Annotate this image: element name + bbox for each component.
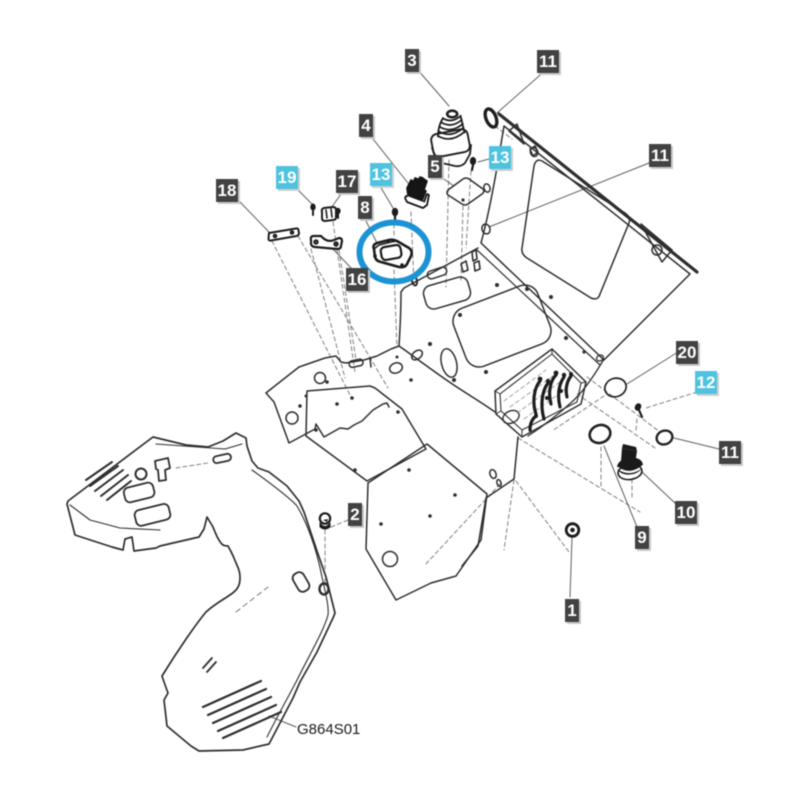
svg-text:G864S01: G864S01 xyxy=(297,721,360,738)
